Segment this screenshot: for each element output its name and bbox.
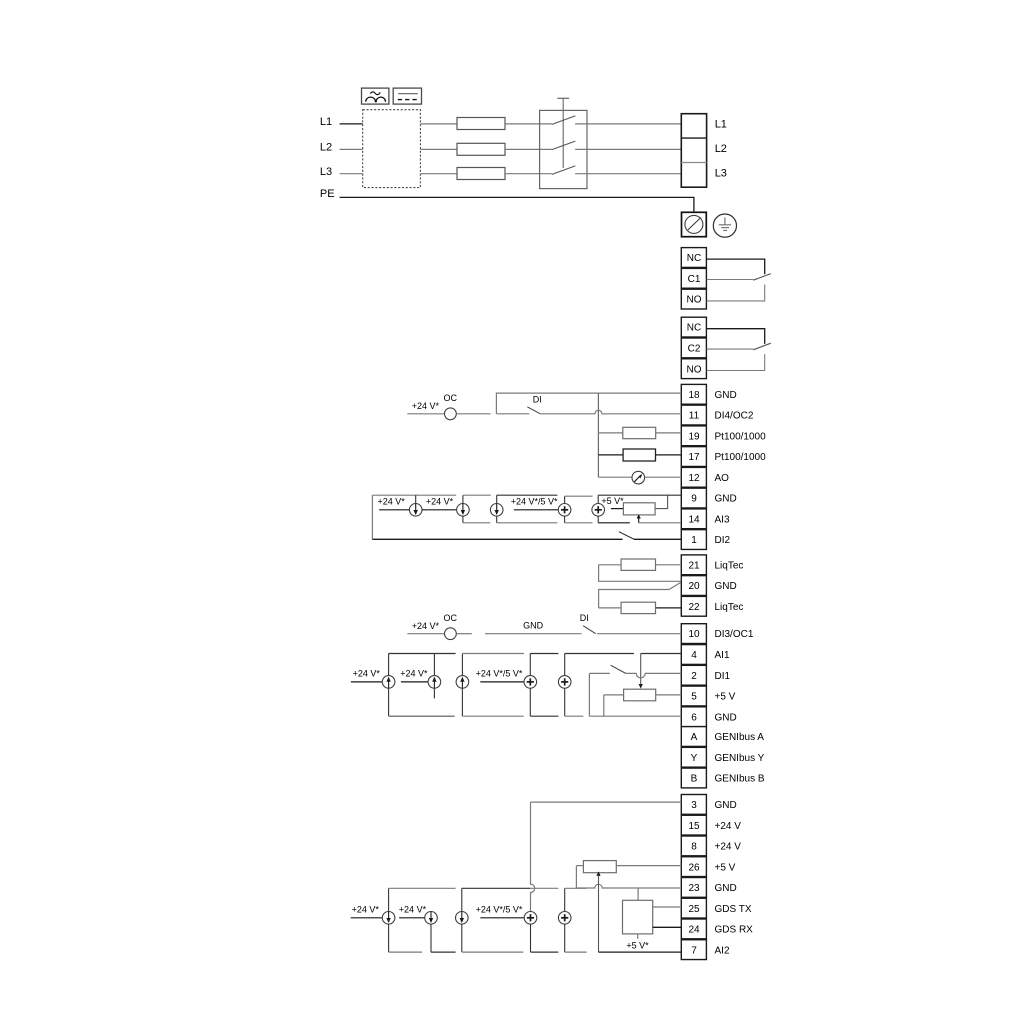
svg-text:+24 V*/5 V*: +24 V*/5 V* xyxy=(511,497,558,507)
svg-text:+24 V*: +24 V* xyxy=(378,497,406,507)
svg-text:L2: L2 xyxy=(320,141,332,153)
svg-text:GDS TX: GDS TX xyxy=(715,904,752,915)
svg-text:10: 10 xyxy=(688,629,700,640)
svg-text:25: 25 xyxy=(688,904,700,915)
svg-text:+24 V: +24 V xyxy=(715,842,742,853)
svg-text:+24 V*: +24 V* xyxy=(426,497,454,507)
svg-text:DI: DI xyxy=(580,613,589,623)
svg-text:18: 18 xyxy=(688,390,700,401)
svg-text:NO: NO xyxy=(687,364,702,375)
svg-text:GENIbus Y: GENIbus Y xyxy=(715,753,765,764)
svg-text:4: 4 xyxy=(691,650,697,661)
svg-text:GENIbus B: GENIbus B xyxy=(715,774,765,785)
svg-text:Pt100/1000: Pt100/1000 xyxy=(715,431,767,442)
svg-text:GND: GND xyxy=(715,800,737,811)
svg-text:+24 V: +24 V xyxy=(715,821,742,832)
svg-text:+24 V*: +24 V* xyxy=(400,669,428,679)
svg-text:DI: DI xyxy=(533,394,542,404)
svg-text:PE: PE xyxy=(320,188,335,200)
svg-text:GDS RX: GDS RX xyxy=(715,925,754,936)
svg-text:B: B xyxy=(691,774,698,785)
svg-text:Pt100/1000: Pt100/1000 xyxy=(715,452,767,463)
svg-text:NO: NO xyxy=(687,295,702,306)
svg-text:GND: GND xyxy=(715,390,737,401)
svg-text:+5 V*: +5 V* xyxy=(626,940,649,950)
svg-text:GND: GND xyxy=(715,581,737,592)
svg-text:3: 3 xyxy=(691,800,697,811)
svg-text:+5 V: +5 V xyxy=(715,862,736,873)
svg-text:Y: Y xyxy=(691,753,698,764)
svg-text:6: 6 xyxy=(691,712,697,723)
svg-text:L3: L3 xyxy=(320,166,332,178)
svg-text:GND: GND xyxy=(715,712,737,723)
svg-text:L3: L3 xyxy=(715,167,727,179)
svg-text:1: 1 xyxy=(691,535,697,546)
svg-text:23: 23 xyxy=(688,883,700,894)
svg-text:22: 22 xyxy=(688,602,700,613)
svg-text:LiqTec: LiqTec xyxy=(715,560,744,571)
svg-text:GENIbus A: GENIbus A xyxy=(715,732,765,743)
svg-text:AI1: AI1 xyxy=(715,650,730,661)
svg-text:GND: GND xyxy=(523,621,544,631)
svg-text:15: 15 xyxy=(688,821,700,832)
svg-text:C2: C2 xyxy=(688,344,701,355)
svg-text:DI1: DI1 xyxy=(715,671,731,682)
svg-text:L2: L2 xyxy=(715,143,727,155)
svg-text:GND: GND xyxy=(715,494,737,505)
svg-text:A: A xyxy=(691,732,698,743)
svg-text:DI3/OC1: DI3/OC1 xyxy=(715,629,754,640)
svg-text:+24 V*: +24 V* xyxy=(399,904,427,914)
svg-text:5: 5 xyxy=(691,692,697,703)
svg-text:+5 V: +5 V xyxy=(715,692,736,703)
svg-text:+24 V*: +24 V* xyxy=(353,669,381,679)
svg-text:+24 V*/5 V*: +24 V*/5 V* xyxy=(476,904,523,914)
svg-text:AI3: AI3 xyxy=(715,514,730,525)
svg-text:AO: AO xyxy=(715,473,730,484)
svg-text:11: 11 xyxy=(689,411,700,422)
svg-text:GND: GND xyxy=(715,883,737,894)
svg-text:L1: L1 xyxy=(320,116,332,128)
svg-text:AI2: AI2 xyxy=(715,945,730,956)
svg-text:20: 20 xyxy=(688,581,700,592)
svg-text:12: 12 xyxy=(688,473,700,484)
svg-text:21: 21 xyxy=(688,560,700,571)
svg-text:NC: NC xyxy=(687,323,701,334)
svg-text:OC: OC xyxy=(444,613,458,623)
svg-text:DI2: DI2 xyxy=(715,535,731,546)
svg-text:+24 V*/5 V*: +24 V*/5 V* xyxy=(476,669,523,679)
svg-text:9: 9 xyxy=(691,494,697,505)
svg-text:8: 8 xyxy=(691,842,697,853)
svg-text:NC: NC xyxy=(687,253,701,264)
svg-text:OC: OC xyxy=(444,393,458,403)
svg-text:+24 V*: +24 V* xyxy=(352,904,380,914)
svg-text:26: 26 xyxy=(688,862,700,873)
svg-text:DI4/OC2: DI4/OC2 xyxy=(715,411,754,422)
svg-text:24: 24 xyxy=(688,925,700,936)
svg-text:L1: L1 xyxy=(715,119,727,131)
svg-text:19: 19 xyxy=(688,431,700,442)
svg-text:+5 V*: +5 V* xyxy=(601,496,624,506)
svg-text:+24 V*: +24 V* xyxy=(412,401,440,411)
svg-text:14: 14 xyxy=(688,514,700,525)
svg-text:2: 2 xyxy=(691,671,697,682)
svg-text:+24 V*: +24 V* xyxy=(412,621,440,631)
svg-text:17: 17 xyxy=(688,452,700,463)
svg-text:C1: C1 xyxy=(688,274,701,285)
svg-text:7: 7 xyxy=(691,945,697,956)
svg-text:LiqTec: LiqTec xyxy=(715,602,744,613)
